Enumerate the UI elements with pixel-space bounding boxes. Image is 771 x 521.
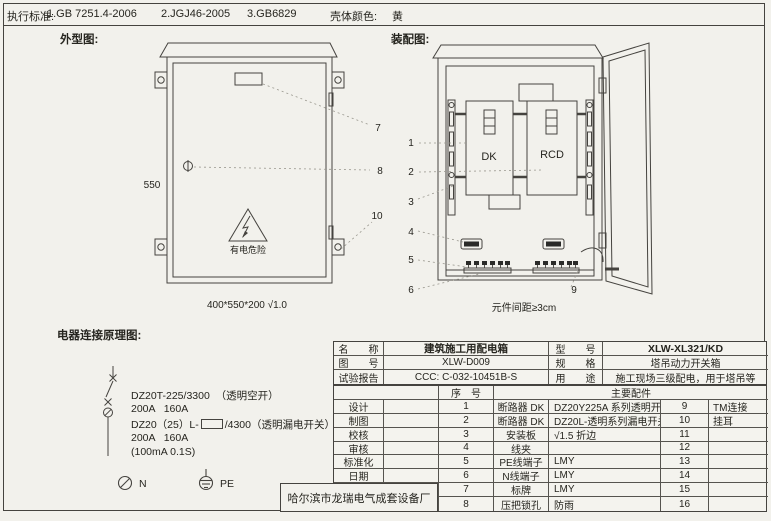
parts-r6-seq: 6 [439,469,494,483]
frame-size-box [201,419,223,429]
title-block-info-table: 名 称 建筑施工用配电箱 型 号 XLW-XL321/KD 图 号 XLW-D0… [333,341,767,385]
parts-r2-item2: 挂耳 [709,414,768,428]
parts-r1-item2: TM连接 [709,400,768,414]
parts-r4-role: 审核 [334,442,384,456]
breaker2-leakage: (100mA 0.1S) [131,446,195,458]
parts-header-main: 主要配件 [494,386,768,400]
parts-r2-seq: 2 [439,414,494,428]
schematic-title: 电器连接原理图: [57,327,141,343]
parts-r1-role: 设计 [334,400,384,414]
parts-r5-desc: LMY [549,455,661,469]
parts-r4-desc [549,442,661,456]
parts-r8-desc: 防雨 [549,497,661,511]
parts-r1-item: 断路器 DK [494,400,549,414]
parts-r2-item: 断路器 DK [494,414,549,428]
parts-r5-role: 标准化 [334,455,384,469]
info-testreport-label: 试验报告 [334,370,384,384]
info-spec-label: 规 格 [549,356,603,370]
breaker2-model-suffix: /4300（透明漏电开关） [225,419,335,431]
info-name-label: 名 称 [334,342,384,356]
info-drawingno-label: 图 号 [334,356,384,370]
parts-r6-desc: LMY [549,469,661,483]
parts-r1-signature [384,400,439,414]
manufacturer-cell: 哈尔滨市龙瑞电气成套设备厂 [280,483,438,512]
info-testreport-value: CCC: C-032-10451B-S [384,370,549,384]
info-model-label: 型 号 [549,342,603,356]
drawing-sheet: 执行标准: 1.GB 7251.4-2006 2.JGJ46-2005 3.GB… [0,0,771,521]
info-drawingno-value: XLW-D009 [384,356,549,370]
parts-r8-seq2: 16 [661,497,709,511]
parts-r3-item2 [709,428,768,442]
header-divider [3,25,765,26]
parts-r5-seq: 5 [439,455,494,469]
parts-header-blank [334,386,439,400]
parts-r2-role: 制图 [334,414,384,428]
parts-r6-item2 [709,469,768,483]
parts-r8-item2 [709,497,768,511]
parts-r6-item: N线端子 [494,469,549,483]
info-usage-value: 施工现场三级配电，用于塔吊等 [603,370,768,384]
breaker1-model: DZ20T-225/3300 （透明空开） [131,388,279,403]
parts-r4-signature [384,442,439,456]
parts-r2-desc: DZ20L-透明系列漏电开关 [549,414,661,428]
parts-r5-signature [384,455,439,469]
info-usage-label: 用 途 [549,370,603,384]
parts-r2-signature [384,414,439,428]
parts-r6-signature [384,469,439,483]
parts-r3-role: 校核 [334,428,384,442]
parts-r1-desc: DZ20Y225A 系列透明开关 [549,400,661,414]
shell-color-label: 壳体颜色: [330,8,377,24]
parts-r3-signature [384,428,439,442]
parts-r7-seq2: 15 [661,483,709,497]
breaker2-model-prefix: DZ20（25）L- [131,419,199,431]
shell-color-value: 黄 [392,8,403,24]
standard-3: 3.GB6829 [247,8,297,20]
parts-r7-desc: LMY [549,483,661,497]
parts-r3-item: 安装板 [494,428,549,442]
parts-header-seq: 序 号 [439,386,494,400]
parts-r1-seq: 1 [439,400,494,414]
info-name-value: 建筑施工用配电箱 [384,342,549,356]
info-model-value: XLW-XL321/KD [603,342,768,356]
outline-drawing-title: 外型图: [60,31,98,47]
parts-r8-seq: 8 [439,497,494,511]
parts-r3-seq2: 11 [661,428,709,442]
parts-r6-role: 日期 [334,469,384,483]
breaker2-model: DZ20（25）L-/4300（透明漏电开关） [131,417,335,432]
parts-r4-seq2: 12 [661,442,709,456]
parts-r2-seq2: 10 [661,414,709,428]
parts-r1-seq2: 9 [661,400,709,414]
breaker1-rating: 200A 160A [131,403,188,415]
breaker2-rating: 200A 160A [131,432,188,444]
parts-r5-item2 [709,455,768,469]
standard-1: 1.GB 7251.4-2006 [47,8,137,20]
parts-r4-item2 [709,442,768,456]
parts-r6-seq2: 14 [661,469,709,483]
parts-r7-item2 [709,483,768,497]
info-spec-value: 塔吊动力开关箱 [603,356,768,370]
parts-r5-seq2: 13 [661,455,709,469]
parts-r7-seq: 7 [439,483,494,497]
parts-r3-seq: 3 [439,428,494,442]
parts-r4-seq: 4 [439,442,494,456]
assembly-drawing-title: 装配图: [391,31,429,47]
parts-r8-item: 压把锁孔 [494,497,549,511]
standard-2: 2.JGJ46-2005 [161,8,230,20]
parts-r4-item: 线夹 [494,442,549,456]
parts-r5-item: PE线端子 [494,455,549,469]
parts-r3-desc: √1.5 折边 [549,428,661,442]
parts-r7-item: 标牌 [494,483,549,497]
